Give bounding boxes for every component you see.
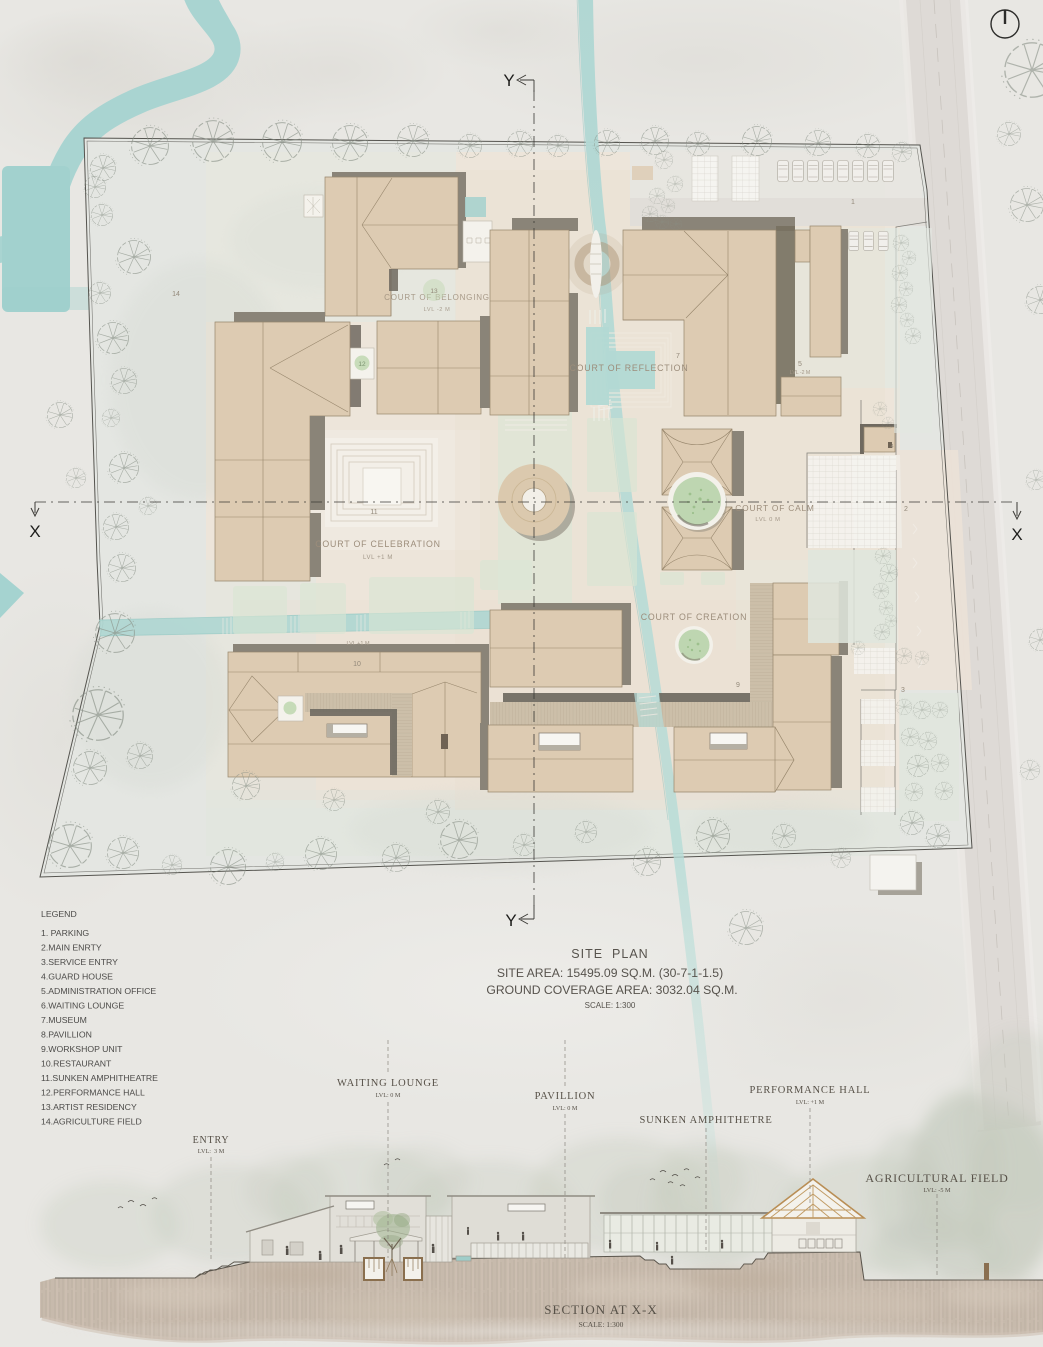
svg-text:SITE AREA: 15495.09 SQ.M. (30-: SITE AREA: 15495.09 SQ.M. (30-7-1-1.5) — [497, 966, 723, 980]
svg-text:ENTRY: ENTRY — [193, 1135, 230, 1146]
svg-text:LVL: 0 M: LVL: 0 M — [553, 1105, 578, 1112]
svg-text:10: 10 — [353, 661, 361, 668]
svg-text:11.SUNKEN AMPHITHEATRE: 11.SUNKEN AMPHITHEATRE — [41, 1073, 158, 1083]
svg-text:8.PAVILLION: 8.PAVILLION — [41, 1030, 92, 1040]
svg-text:PERFORMANCE HALL: PERFORMANCE HALL — [749, 1085, 870, 1096]
svg-text:2: 2 — [904, 506, 908, 513]
svg-text:PAVILLION: PAVILLION — [535, 1091, 596, 1102]
svg-text:Y: Y — [505, 911, 516, 930]
svg-text:2.MAIN ENRTY: 2.MAIN ENRTY — [41, 943, 102, 953]
svg-text:COURT OF REFLECTION: COURT OF REFLECTION — [570, 363, 689, 373]
svg-text:GROUND COVERAGE AREA: 3032.04: GROUND COVERAGE AREA: 3032.04 SQ.M. — [486, 983, 737, 997]
svg-text:12: 12 — [358, 361, 366, 368]
svg-text:Y: Y — [503, 71, 514, 90]
svg-text:COURT OF CREATION: COURT OF CREATION — [641, 612, 747, 622]
svg-text:9.WORKSHOP UNIT: 9.WORKSHOP UNIT — [41, 1044, 123, 1054]
svg-text:5.ADMINISTRATION OFFICE: 5.ADMINISTRATION OFFICE — [41, 986, 156, 996]
svg-text:LVL: 3 M: LVL: 3 M — [198, 1148, 225, 1155]
svg-text:SCALE: 1:300: SCALE: 1:300 — [585, 1001, 636, 1010]
svg-text:SCALE: 1:300: SCALE: 1:300 — [579, 1320, 624, 1329]
svg-text:14: 14 — [172, 291, 180, 298]
svg-text:COURT OF CELEBRATION: COURT OF CELEBRATION — [315, 539, 441, 549]
svg-text:COURT OF CALM: COURT OF CALM — [735, 503, 814, 513]
svg-text:LVL +1 M: LVL +1 M — [346, 641, 370, 647]
svg-text:AGRICULTURAL FIELD: AGRICULTURAL FIELD — [865, 1171, 1008, 1185]
svg-text:6.WAITING LOUNGE: 6.WAITING LOUNGE — [41, 1001, 124, 1011]
svg-text:11: 11 — [370, 509, 377, 516]
svg-text:7: 7 — [676, 353, 680, 360]
svg-text:SITE PLAN: SITE PLAN — [571, 947, 648, 961]
svg-text:LVL: +1 M: LVL: +1 M — [796, 1099, 825, 1106]
svg-text:SUNKEN AMPHITHETRE: SUNKEN AMPHITHETRE — [639, 1115, 772, 1126]
svg-text:14.AGRICULTURE FIELD: 14.AGRICULTURE FIELD — [41, 1117, 142, 1127]
svg-text:4.GUARD HOUSE: 4.GUARD HOUSE — [41, 972, 113, 982]
svg-text:LEGEND: LEGEND — [41, 909, 77, 919]
svg-text:1. PARKING: 1. PARKING — [41, 928, 89, 938]
svg-text:13: 13 — [430, 288, 438, 295]
svg-text:SECTION AT X-X: SECTION AT X-X — [544, 1302, 657, 1317]
svg-text:X: X — [29, 522, 40, 541]
svg-text:13.ARTIST RESIDENCY: 13.ARTIST RESIDENCY — [41, 1102, 137, 1112]
svg-text:4: 4 — [890, 444, 893, 450]
svg-text:10.RESTAURANT: 10.RESTAURANT — [41, 1059, 112, 1069]
svg-text:LVL -2 M: LVL -2 M — [790, 370, 810, 376]
svg-text:1: 1 — [851, 199, 855, 206]
svg-text:7.MUSEUM: 7.MUSEUM — [41, 1015, 87, 1025]
svg-text:LVL: 0 M: LVL: 0 M — [376, 1092, 401, 1099]
svg-text:LVL: -5 M: LVL: -5 M — [924, 1187, 951, 1194]
svg-text:3.SERVICE ENTRY: 3.SERVICE ENTRY — [41, 957, 118, 967]
svg-text:LVL 0 M: LVL 0 M — [755, 517, 780, 523]
svg-text:5: 5 — [798, 361, 802, 368]
svg-text:LVL -2 M: LVL -2 M — [424, 307, 451, 313]
svg-text:12.PERFORMANCE HALL: 12.PERFORMANCE HALL — [41, 1088, 145, 1098]
svg-text:LVL +1 M: LVL +1 M — [363, 555, 393, 561]
svg-text:9: 9 — [736, 682, 740, 689]
svg-text:3: 3 — [901, 687, 905, 694]
svg-text:X: X — [1011, 525, 1022, 544]
svg-text:WAITING LOUNGE: WAITING LOUNGE — [337, 1078, 439, 1089]
